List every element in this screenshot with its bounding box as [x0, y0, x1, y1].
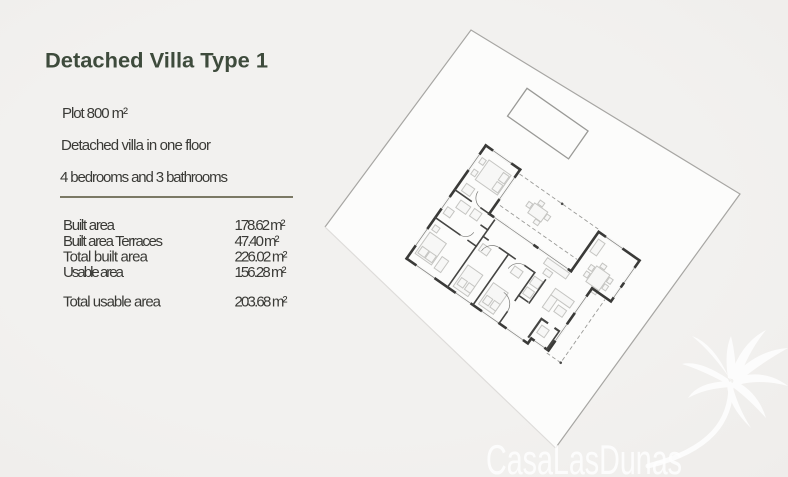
svg-text:Built area Terraces: Built area Terraces	[63, 233, 163, 250]
svg-text:Usable area: Usable area	[63, 264, 125, 281]
svg-text:Plot 800 m²: Plot 800 m²	[62, 105, 128, 122]
svg-text:226.02 m²: 226.02 m²	[235, 249, 288, 266]
svg-text:Built area: Built area	[63, 217, 116, 234]
svg-text:156.28 m²: 156.28 m²	[235, 264, 287, 281]
svg-text:Detached Villa Type 1: Detached Villa Type 1	[45, 50, 268, 73]
svg-text:Detached villa in one floor: Detached villa in one floor	[61, 137, 211, 154]
svg-text:4 bedrooms and 3 bathrooms: 4 bedrooms and 3 bathrooms	[60, 169, 228, 186]
svg-text:178.62 m²: 178.62 m²	[235, 217, 286, 234]
svg-text:CasaLasDunas: CasaLasDunas	[486, 436, 682, 477]
svg-text:Total usable area: Total usable area	[63, 294, 162, 311]
svg-text:203.68 m²: 203.68 m²	[235, 294, 288, 311]
svg-text:47.40 m²: 47.40 m²	[235, 233, 280, 250]
svg-text:Total built area: Total built area	[63, 249, 149, 266]
